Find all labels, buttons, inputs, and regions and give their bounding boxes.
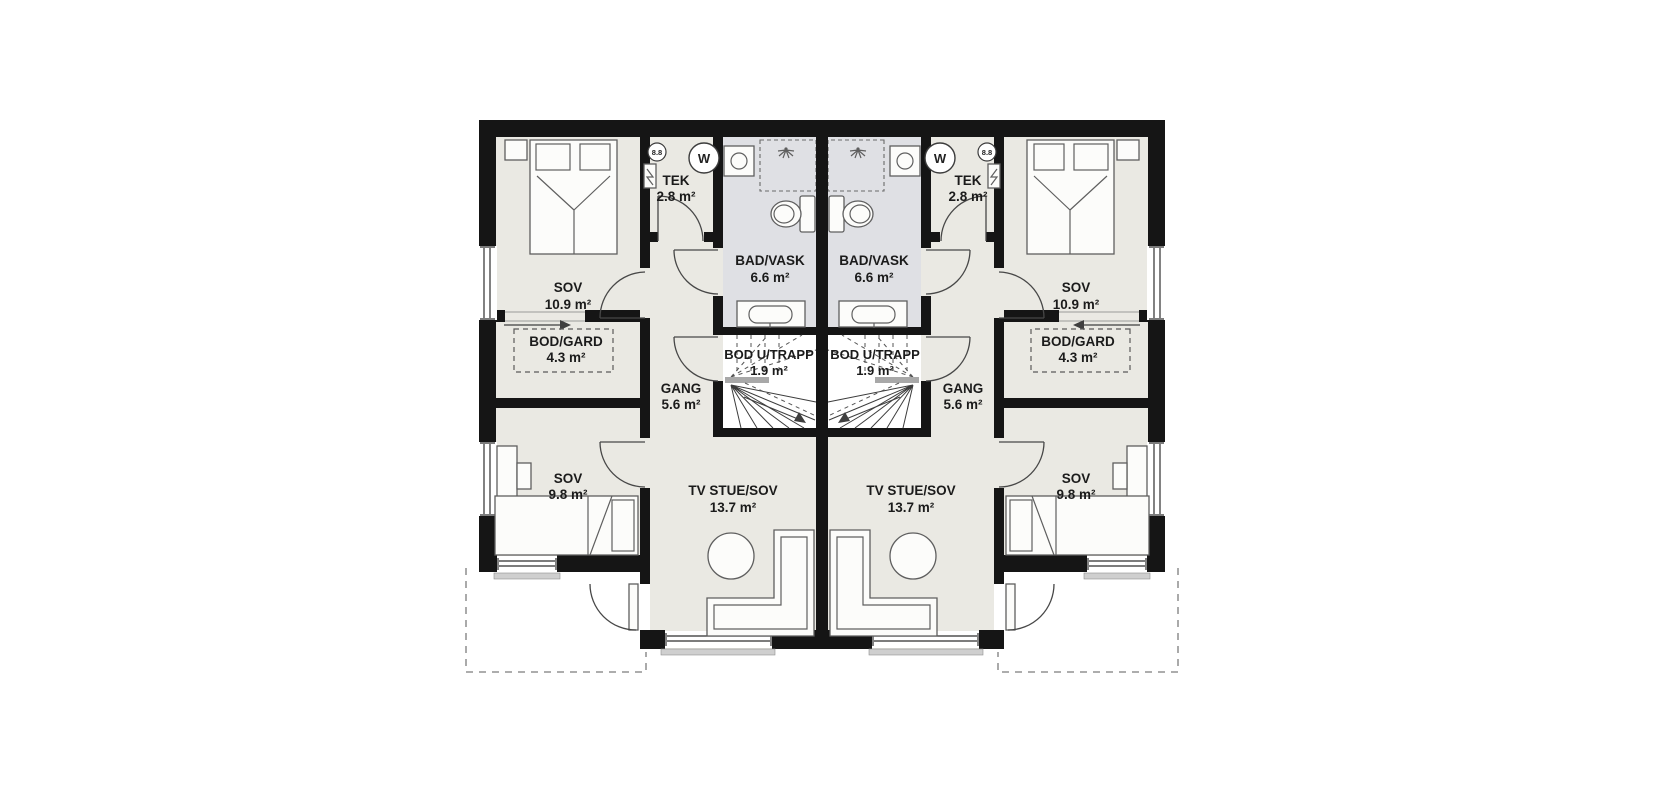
room-area: 13.7 m² <box>710 500 757 515</box>
floor-plan-page: SOV 10.9 m² TEK 2.8 m² BAD/VASK 6.6 m² B… <box>0 0 1670 800</box>
wall-segment <box>585 310 640 322</box>
wall-segment <box>994 555 1087 572</box>
window <box>1084 556 1150 579</box>
room-label: TV STUE/SOV <box>866 483 955 498</box>
wall-segment <box>557 555 650 572</box>
room-label: BAD/VASK <box>839 253 909 268</box>
window <box>494 556 560 579</box>
wall-segment <box>1139 310 1148 322</box>
room-area: 4.3 m² <box>1058 350 1098 365</box>
entrance-door <box>590 584 638 630</box>
water-heater-label: W <box>934 151 947 166</box>
single-bed <box>495 496 638 555</box>
wall-segment <box>1004 310 1059 322</box>
room-area: 6.6 m² <box>750 270 790 285</box>
room-label: TV STUE/SOV <box>688 483 777 498</box>
room-area: 13.7 m² <box>888 500 935 515</box>
party-wall <box>816 137 828 649</box>
room-label: GANG <box>661 381 702 396</box>
floor-plan-canvas: SOV 10.9 m² TEK 2.8 m² BAD/VASK 6.6 m² B… <box>0 0 1670 800</box>
round-table <box>708 533 754 579</box>
washing-machine <box>724 146 754 176</box>
room-area: 2.8 m² <box>656 189 696 204</box>
window <box>478 246 497 320</box>
detector-label: 8.8 <box>982 148 992 157</box>
sink-vanity <box>737 301 805 328</box>
wall-segment <box>479 555 497 572</box>
wall-segment <box>828 428 931 437</box>
room-area: 4.3 m² <box>546 350 586 365</box>
terrace-outline <box>466 568 646 672</box>
double-bed <box>530 140 617 254</box>
room-area: 5.6 m² <box>661 397 701 412</box>
wall-segment <box>650 232 658 242</box>
room-area: 9.8 m² <box>1056 487 1096 502</box>
room-label: BOD/GARD <box>1041 334 1115 349</box>
round-table <box>890 533 936 579</box>
wall-segment <box>979 630 1004 649</box>
wall-segment <box>994 572 1004 584</box>
washing-machine <box>890 146 920 176</box>
electrical-panel <box>644 164 656 188</box>
wall-segment <box>986 232 994 242</box>
wall-segment <box>713 428 816 437</box>
unit-right-geometry <box>828 120 1178 672</box>
window <box>1147 442 1166 516</box>
wall-segment <box>1004 398 1148 408</box>
wall-segment <box>828 327 921 335</box>
wall-segment <box>640 137 650 268</box>
double-bed <box>1027 140 1114 254</box>
terrace-outline <box>998 568 1178 672</box>
room-label: GANG <box>943 381 984 396</box>
wall-segment <box>640 318 650 438</box>
room-label: TEK <box>955 173 982 188</box>
room-area: 6.6 m² <box>854 270 894 285</box>
nightstand <box>1117 140 1139 160</box>
room-label: BOD U/TRAPP <box>724 347 814 362</box>
electrical-panel <box>988 164 1000 188</box>
water-heater-label: W <box>698 151 711 166</box>
room-label: SOV <box>554 280 583 295</box>
room-label: BOD/GARD <box>529 334 603 349</box>
detector-label: 8.8 <box>652 148 662 157</box>
wall-segment <box>723 327 816 335</box>
room-label: SOV <box>1062 280 1091 295</box>
room-area: 9.8 m² <box>548 487 588 502</box>
wall-segment <box>496 398 640 408</box>
window <box>1147 246 1166 320</box>
wall-segment <box>921 296 931 335</box>
wall-segment <box>496 310 505 322</box>
room-label: SOV <box>1062 471 1091 486</box>
room-area: 1.9 m² <box>856 363 894 378</box>
wall-segment <box>1147 555 1165 572</box>
room-area: 2.8 m² <box>948 189 988 204</box>
unit-left-geometry <box>466 120 816 672</box>
entrance-door <box>1006 584 1054 630</box>
wall-segment <box>640 572 650 584</box>
wall-segment <box>994 137 1004 268</box>
room-label: BOD U/TRAPP <box>830 347 920 362</box>
room-area: 1.9 m² <box>750 363 788 378</box>
wall-segment <box>994 318 1004 438</box>
room-area: 5.6 m² <box>943 397 983 412</box>
nightstand <box>505 140 527 160</box>
room-area: 10.9 m² <box>545 297 592 312</box>
wall-segment <box>640 630 665 649</box>
window <box>478 442 497 516</box>
room-label: TEK <box>663 173 690 188</box>
top-exterior-wall <box>479 120 1165 137</box>
room-area: 10.9 m² <box>1053 297 1100 312</box>
room-label: BAD/VASK <box>735 253 805 268</box>
single-bed <box>1006 496 1149 555</box>
wall-segment <box>713 296 723 335</box>
room-label: SOV <box>554 471 583 486</box>
sink-vanity <box>839 301 907 328</box>
